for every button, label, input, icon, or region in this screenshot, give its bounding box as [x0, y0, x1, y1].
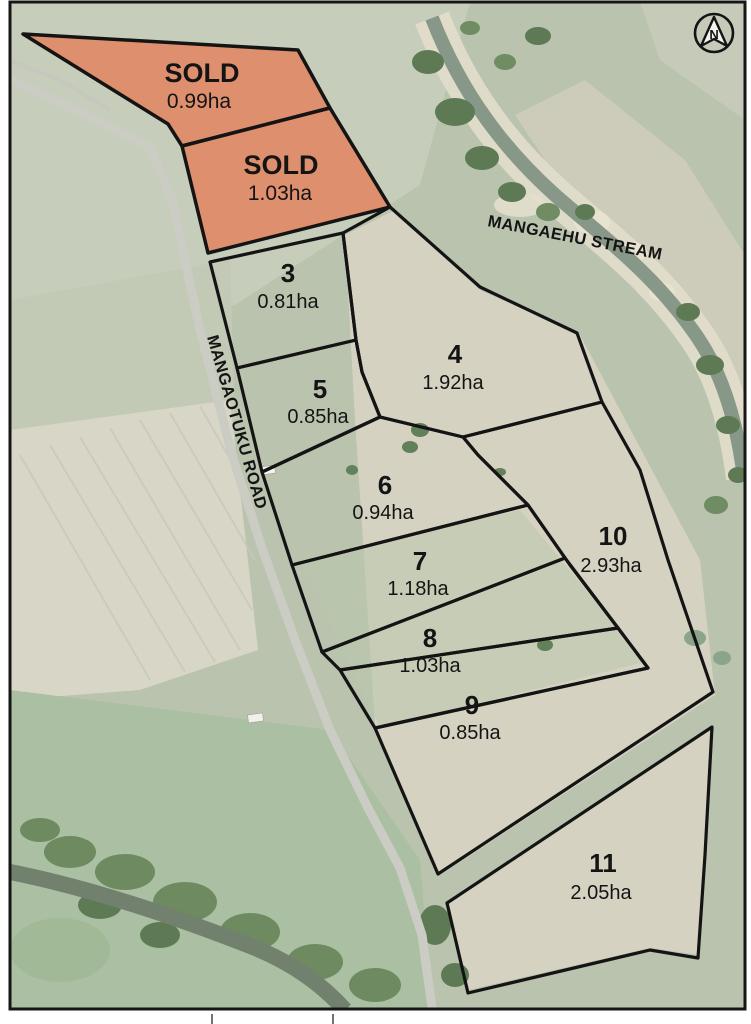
lot-sold-lower-label: SOLD: [243, 150, 318, 180]
lot-sold-top-area: 0.99ha: [167, 90, 232, 113]
north-arrow-n: N: [709, 27, 718, 42]
lot-10-number: 10: [599, 521, 628, 551]
lot-8-number: 8: [423, 623, 437, 653]
subdivision-map-page: SOLD 0.99ha SOLD 1.03ha 3 0.81ha 4 1.92h…: [0, 0, 751, 1024]
lot-10-area: 2.93ha: [580, 555, 642, 577]
shed: [248, 713, 264, 723]
lot-5-number: 5: [313, 374, 327, 404]
lot-3-number: 3: [281, 258, 295, 288]
lot-5-area: 0.85ha: [287, 406, 349, 428]
lot-8-area: 1.03ha: [399, 655, 461, 677]
lot-4-number: 4: [448, 339, 463, 369]
lot-11-number: 11: [589, 848, 617, 878]
lot-3-area: 0.81ha: [257, 291, 319, 313]
lot-4-area: 1.92ha: [422, 372, 484, 394]
lot-9-area: 0.85ha: [439, 722, 501, 744]
lot-sold-lower-area: 1.03ha: [248, 182, 313, 205]
lot-7-area: 1.18ha: [387, 578, 449, 600]
lot-9-number: 9: [465, 690, 479, 720]
lot-7-number: 7: [413, 546, 427, 576]
lot-6-area: 0.94ha: [352, 502, 414, 524]
subdivision-map: SOLD 0.99ha SOLD 1.03ha 3 0.81ha 4 1.92h…: [0, 0, 751, 1024]
lot-sold-top-label: SOLD: [164, 58, 239, 88]
lot-6-number: 6: [378, 470, 392, 500]
lot-11-area: 2.05ha: [570, 882, 632, 904]
